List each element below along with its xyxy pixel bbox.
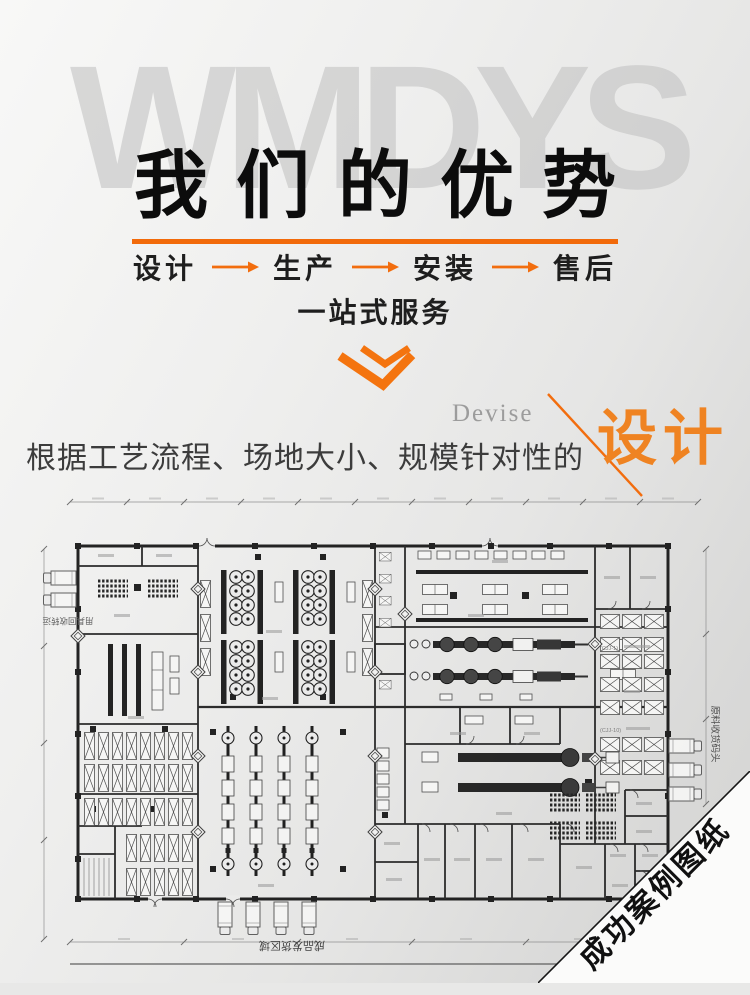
flow-step-installation: 安装 — [413, 247, 477, 287]
footer-strip — [0, 983, 750, 995]
flow-step-design: 设计 — [133, 247, 197, 287]
page-title: 我们的优势 — [134, 126, 644, 233]
corner-banner: 成功案例图纸 — [538, 771, 750, 983]
design-keyword: 设计 — [597, 390, 729, 477]
rack-row-label-2: (CJJ-10) — [600, 728, 621, 734]
process-flow: 设计 生产 安装 售后 — [0, 247, 750, 287]
rack-row-label-1: (CJJ-1) — [600, 646, 618, 652]
bottom-dock-label: 成品发货区域 — [259, 939, 325, 953]
flow-arrow-icon — [211, 259, 259, 275]
one-stop-tagline: 一站式服务 — [0, 291, 750, 331]
title-underline — [132, 239, 618, 244]
design-description: 根据工艺流程、场地大小、规模针对性的 — [26, 433, 584, 477]
poster-canvas: WMDYS 我们的优势 设计 生产 安装 售后 一站式服务 Devise 设计 … — [0, 0, 750, 995]
flow-arrow-icon — [351, 259, 399, 275]
devise-eyebrow: Devise — [452, 400, 533, 428]
header: 我们的优势 — [0, 126, 750, 244]
double-chevron-down-icon — [333, 345, 417, 391]
flow-arrow-icon — [491, 259, 539, 275]
right-dock-label: 原料收货码头 — [709, 705, 720, 762]
left-dock-label: 用具回收转运 — [42, 616, 94, 626]
flow-step-aftersales: 售后 — [553, 247, 617, 287]
flow-step-production: 生产 — [273, 247, 337, 287]
